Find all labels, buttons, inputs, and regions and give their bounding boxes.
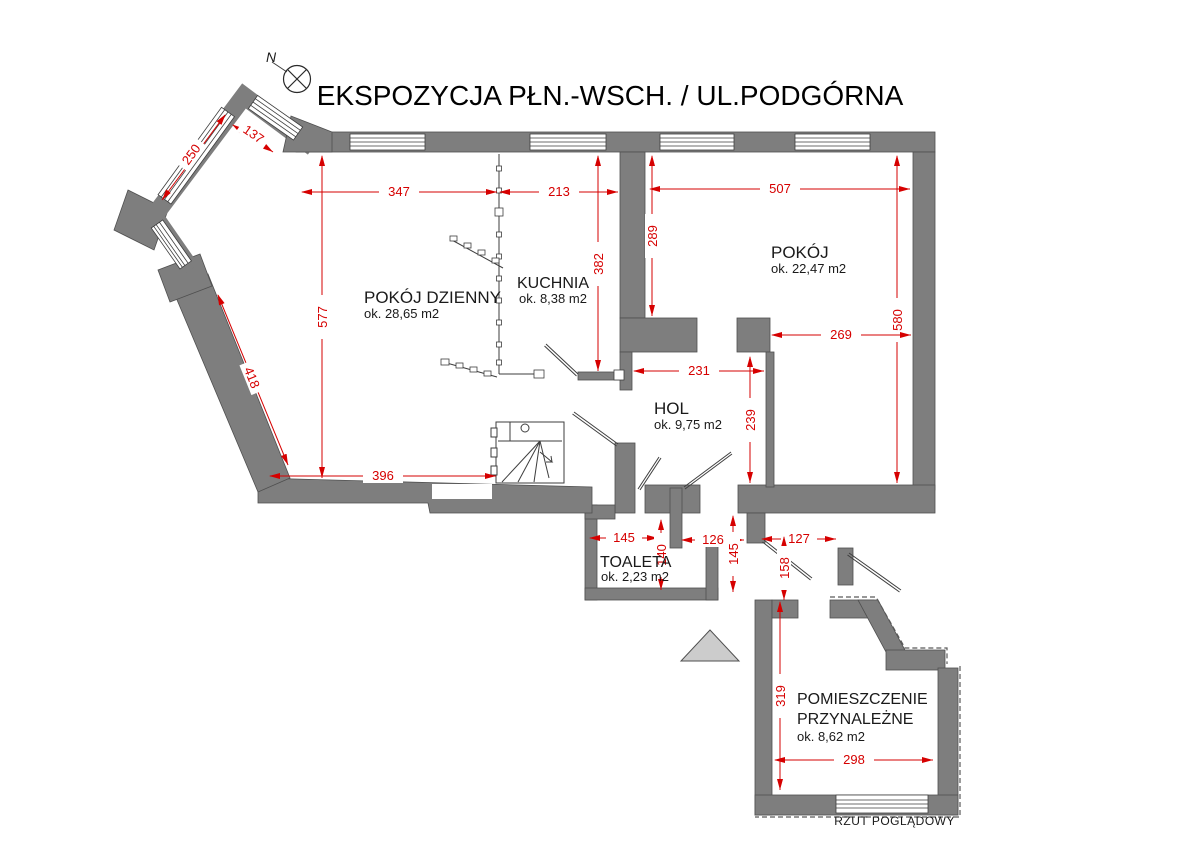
wall-kitchen-right	[620, 152, 645, 318]
dim-label: 319	[773, 685, 788, 707]
dim-label: 289	[645, 225, 660, 247]
room-name-pokoj: POKÓJ	[771, 243, 829, 262]
window-top-4	[795, 134, 870, 150]
room-name-kuchnia: KUCHNIA	[517, 275, 589, 292]
door-swing-hol-south	[684, 452, 732, 489]
door-swing-kitchen	[545, 344, 579, 376]
wall-annex-right	[938, 668, 958, 815]
dim-label: 298	[843, 752, 865, 767]
dim-pokoj-left-upper: 289	[645, 156, 660, 316]
room-name-hol: HOL	[654, 399, 689, 418]
dim-bay-window-left: 250	[162, 115, 225, 200]
compass: N	[266, 49, 311, 93]
dim-toaleta-door-width: 145	[590, 530, 658, 545]
room-area-pokoj: ok. 22,47 m2	[771, 261, 846, 276]
wall-toaleta-bottom	[585, 588, 718, 600]
floor-plan-page: 137 250 347 213 507	[0, 0, 1200, 849]
dim-corridor-height: 145	[726, 516, 741, 592]
room-name-pokoj-dzienny: POKÓJ DZIENNY	[364, 288, 501, 307]
bead-chain-upper	[450, 239, 503, 268]
room-area-kuchnia: ok. 8,38 m2	[519, 291, 587, 306]
room-name-annex-line2: PRZYNALEŻNE	[797, 709, 913, 728]
dim-label: 145	[613, 530, 635, 545]
compass-needle	[272, 62, 287, 72]
dim-pokoj-right-height: 580	[890, 156, 905, 483]
room-area-pokoj-dzienny: ok. 28,65 m2	[364, 306, 439, 321]
room-name-annex-line1: POMIESZCZENIE	[797, 691, 928, 708]
page-title: EKSPOZYCJA PŁN.-WSCH. / UL.PODGÓRNA	[317, 80, 904, 111]
window-annex	[836, 795, 928, 813]
entry-step-triangle	[681, 630, 739, 661]
dim-label: 127	[788, 531, 810, 546]
floor-plan-canvas: 137 250 347 213 507	[0, 0, 1200, 849]
wall-annex-left	[755, 600, 772, 815]
wall-right	[913, 152, 935, 490]
dim-label: 269	[830, 327, 852, 342]
wall-pokoj-left-thin	[766, 352, 774, 487]
dim-label: 396	[372, 468, 394, 483]
wall-toaleta-right	[706, 545, 718, 600]
dim-label: 580	[890, 309, 905, 331]
wall-annex-topstub	[772, 600, 798, 618]
dim-label: 577	[315, 306, 330, 328]
dim-label: 239	[743, 409, 758, 431]
compass-north-label: N	[266, 49, 277, 65]
dim-label: 382	[591, 253, 606, 275]
wall-hol-top-block	[737, 318, 770, 352]
door-swing-entry	[848, 553, 902, 592]
window-top-1	[350, 134, 425, 150]
dim-living-left-height: 577	[315, 156, 330, 478]
dim-label: 231	[688, 363, 710, 378]
door-swing-living-hol	[573, 412, 619, 446]
dim-kitchen-height: 382	[591, 156, 606, 371]
dim-pokoj-top: 507	[650, 181, 910, 196]
dim-entry-height: 158	[777, 537, 792, 600]
room-area-hol: ok. 9,75 m2	[654, 417, 722, 432]
wall-stub-a	[670, 488, 682, 548]
dim-label: 507	[769, 181, 791, 196]
wall-chimney	[620, 318, 697, 352]
dim-living-top-right: 213	[500, 184, 618, 199]
dim-living-top-left: 347	[302, 184, 497, 199]
dim-label: 213	[548, 184, 570, 199]
room-area-toaleta: ok. 2,23 m2	[601, 569, 669, 584]
dim-annex-width: 298	[775, 752, 933, 767]
room-area-annex: ok. 8,62 m2	[797, 729, 865, 744]
wall-slant	[172, 274, 290, 492]
wall-notch	[432, 484, 492, 499]
window-top-2	[530, 134, 606, 150]
dim-label: 158	[777, 557, 792, 579]
dim-hol-right-height: 239	[743, 357, 758, 483]
wall-band-right	[738, 485, 935, 513]
wall-hol-left-block	[615, 443, 635, 513]
dim-hol-bottom-right: 127	[762, 531, 836, 546]
dim-label: 126	[702, 532, 724, 547]
dim-annex-height: 319	[773, 602, 788, 790]
footer-label: RZUT POGLĄDOWY	[834, 814, 955, 828]
wall-stub-c	[838, 548, 853, 585]
window-top-3	[660, 134, 734, 150]
dim-label: 145	[726, 543, 741, 565]
wall-annex-upperright	[886, 650, 945, 670]
stairs-symbol	[491, 422, 564, 483]
dim-label: 347	[388, 184, 410, 199]
dim-hol-top-width: 231	[634, 363, 764, 378]
